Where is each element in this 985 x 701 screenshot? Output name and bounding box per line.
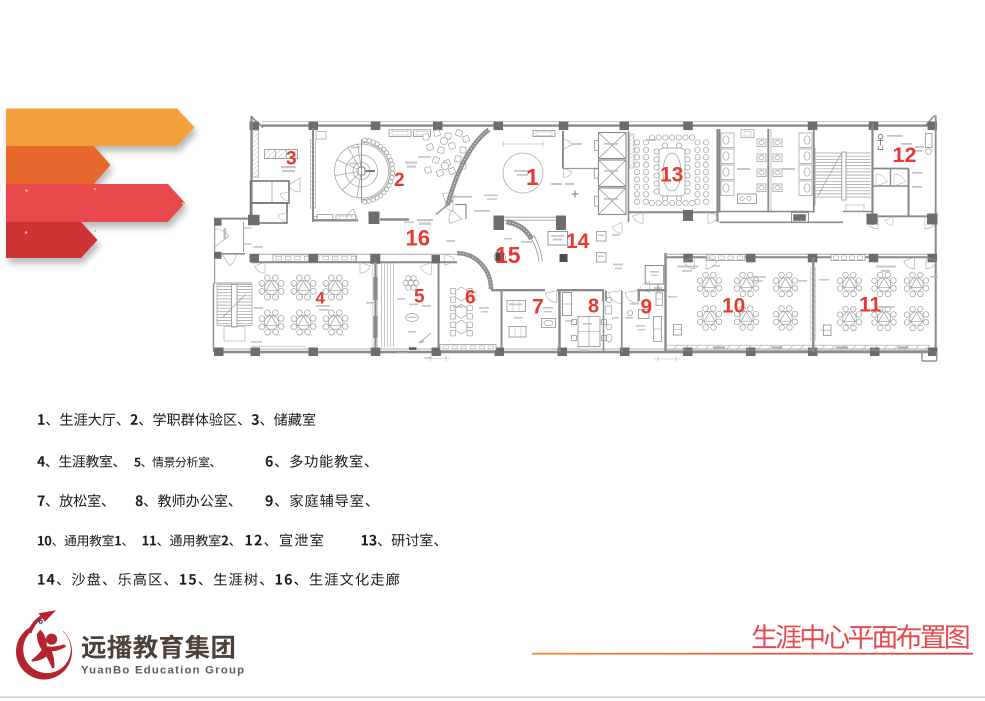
svg-text:5: 5	[414, 287, 425, 308]
svg-text:8: 8	[588, 296, 599, 318]
svg-text:9: 9	[641, 296, 653, 319]
svg-text:3: 3	[286, 149, 297, 170]
svg-text:6: 6	[465, 288, 476, 309]
svg-text:13: 13	[660, 164, 683, 187]
svg-text:10: 10	[722, 295, 745, 318]
svg-text:4: 4	[316, 289, 326, 308]
svg-text:1: 1	[526, 164, 539, 190]
svg-text:15: 15	[495, 242, 521, 268]
svg-text:14: 14	[566, 230, 590, 253]
svg-text:16: 16	[406, 226, 430, 251]
svg-text:11: 11	[859, 294, 882, 317]
svg-text:7: 7	[532, 296, 544, 319]
svg-text:YuanBo Education Group: YuanBo Education Group	[81, 665, 245, 677]
svg-text:2: 2	[394, 170, 405, 191]
svg-text:12: 12	[893, 143, 917, 167]
